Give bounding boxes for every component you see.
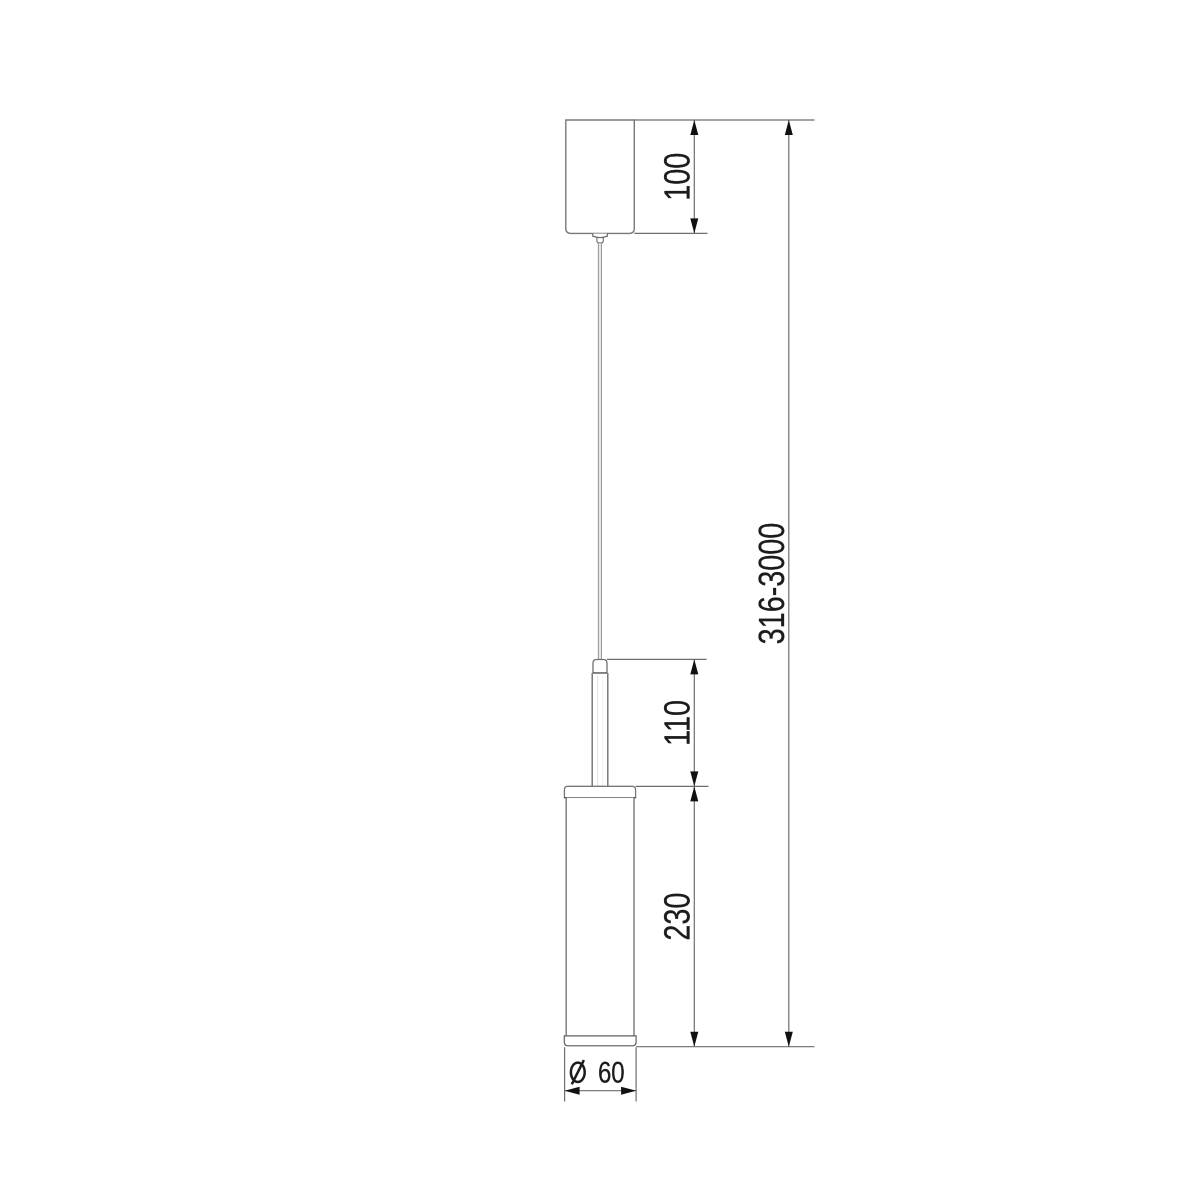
svg-text:316-3000: 316-3000 [751, 523, 792, 645]
svg-text:60: 60 [598, 1055, 625, 1089]
svg-text:100: 100 [656, 153, 697, 201]
svg-text:110: 110 [656, 700, 697, 746]
svg-text:230: 230 [656, 893, 697, 941]
